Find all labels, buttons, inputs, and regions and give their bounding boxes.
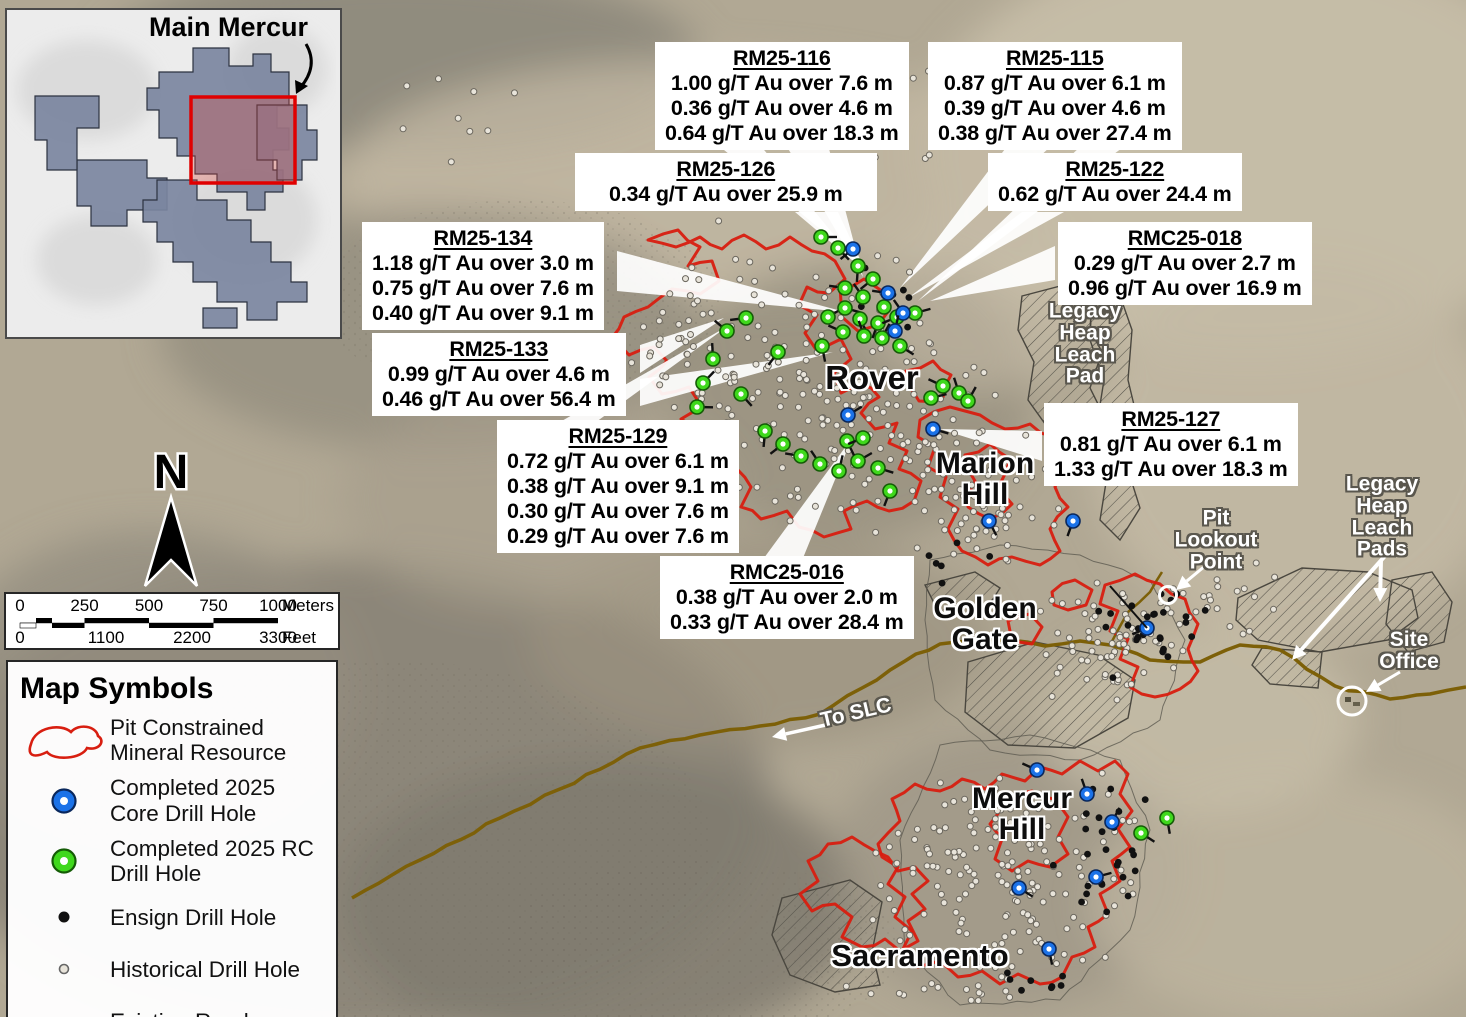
core-drill-hole-marker <box>1012 881 1026 895</box>
rc-drill-hole-marker <box>936 379 950 393</box>
ensign-drill-hole-icon <box>18 891 110 943</box>
core-drill-hole-marker <box>881 286 895 300</box>
rc-drill-hole-marker <box>924 391 938 405</box>
pit-outline-icon <box>18 714 110 766</box>
inset-claim-graphics <box>7 10 336 333</box>
rc-drill-hole-marker <box>838 301 852 315</box>
intercept-line: 0.38 g/T Au over 2.0 m <box>670 585 904 610</box>
map-legend: Map Symbols Pit Constrained Mineral Reso… <box>6 660 338 1017</box>
drillhole-callout-RM25-133: RM25-1330.99 g/T Au over 4.6 m0.46 g/T A… <box>372 333 626 416</box>
rc-drill-hole-marker <box>1160 811 1174 825</box>
drillhole-id: RM25-127 <box>1054 406 1288 432</box>
svg-text:250: 250 <box>70 596 98 615</box>
inset-claim-map: Main Mercur <box>5 8 342 339</box>
rc-drill-hole-marker <box>776 437 790 451</box>
rc-drill-hole-marker <box>832 464 846 478</box>
place-label-marion-hill: Marion Hill <box>936 448 1034 510</box>
legend-item-pit-outline: Pit Constrained Mineral Resource <box>18 710 332 770</box>
mercur-exploration-map: N Main Mercur 02505007501000Meters011002… <box>0 0 1466 1017</box>
intercept-line: 1.00 g/T Au over 7.6 m <box>665 71 899 96</box>
core-drill-hole-marker <box>1080 787 1094 801</box>
drillhole-callout-RM25-126: RM25-1260.34 g/T Au over 25.9 m <box>575 153 877 211</box>
rc-drill-hole-marker <box>831 241 845 255</box>
intercept-line: 0.75 g/T Au over 7.6 m <box>372 276 594 301</box>
drillhole-id: RM25-115 <box>938 45 1172 71</box>
rc-drill-hole-marker <box>690 400 704 414</box>
legend-item-rc-drill-hole: Completed 2025 RC Drill Hole <box>18 831 332 891</box>
core-drill-hole-marker <box>846 242 860 256</box>
drillhole-id: RM25-133 <box>382 336 616 362</box>
rc-drill-hole-marker <box>771 345 785 359</box>
svg-text:2200: 2200 <box>173 628 211 647</box>
drillhole-callout-RMC25-018: RMC25-0180.29 g/T Au over 2.7 m0.96 g/T … <box>1058 222 1312 305</box>
drillhole-callout-RM25-127: RM25-1270.81 g/T Au over 6.1 m1.33 g/T A… <box>1044 403 1298 486</box>
drillhole-id: RMC25-018 <box>1068 225 1302 251</box>
rc-drill-hole-marker <box>838 281 852 295</box>
rc-drill-hole-marker <box>734 387 748 401</box>
intercept-line: 1.33 g/T Au over 18.3 m <box>1054 457 1288 482</box>
intercept-line: 1.18 g/T Au over 3.0 m <box>372 251 594 276</box>
place-label-sacramento: Sacramento <box>831 940 1008 972</box>
rc-drill-hole-marker <box>696 376 710 390</box>
svg-text:1100: 1100 <box>88 628 125 647</box>
historical-drill-hole-icon <box>18 943 110 995</box>
intercept-line: 0.29 g/T Au over 7.6 m <box>507 524 729 549</box>
intercept-line: 0.62 g/T Au over 24.4 m <box>998 182 1232 207</box>
rc-drill-hole-marker <box>851 259 865 273</box>
legend-item-label: Ensign Drill Hole <box>110 900 332 935</box>
core-drill-hole-marker <box>888 324 902 338</box>
rc-drill-hole-marker <box>871 461 885 475</box>
core-drill-hole-marker <box>1089 870 1103 884</box>
drillhole-id: RM25-129 <box>507 423 729 449</box>
drillhole-callout-RM25-115: RM25-1150.87 g/T Au over 6.1 m0.39 g/T A… <box>928 42 1182 150</box>
rc-drill-hole-icon <box>18 835 110 887</box>
core-drill-hole-marker <box>1042 942 1056 956</box>
intercept-line: 0.46 g/T Au over 56.4 m <box>382 387 616 412</box>
intercept-line: 0.99 g/T Au over 4.6 m <box>382 362 616 387</box>
rc-drill-hole-marker <box>758 424 772 438</box>
rc-drill-hole-marker <box>856 290 870 304</box>
legend-item-label: Pit Constrained Mineral Resource <box>110 710 332 770</box>
legend-item-existing-road: Existing Road <box>18 995 332 1017</box>
intercept-line: 0.96 g/T Au over 16.9 m <box>1068 276 1302 301</box>
core-drill-hole-marker <box>841 408 855 422</box>
intercept-line: 0.39 g/T Au over 4.6 m <box>938 96 1172 121</box>
existing-road-icon <box>18 995 110 1017</box>
rc-drill-hole-marker <box>883 484 897 498</box>
core-drill-hole-marker <box>926 422 940 436</box>
svg-text:Meters: Meters <box>282 596 334 615</box>
intercept-line: 0.87 g/T Au over 6.1 m <box>938 71 1172 96</box>
svg-text:Feet: Feet <box>282 628 316 647</box>
feature-label-site-office: Site Office <box>1379 629 1439 673</box>
rc-drill-hole-marker <box>961 394 975 408</box>
rc-drill-hole-marker <box>814 230 828 244</box>
intercept-line: 0.38 g/T Au over 9.1 m <box>507 474 729 499</box>
legend-item-label: Completed 2025 Core Drill Hole <box>110 770 332 830</box>
main-mercur-extent-box <box>191 97 295 183</box>
rc-drill-hole-marker <box>794 449 808 463</box>
feature-label-pit-lookout-point: Pit Lookout Point <box>1175 507 1258 572</box>
drillhole-callout-RM25-116: RM25-1161.00 g/T Au over 7.6 m0.36 g/T A… <box>655 42 909 150</box>
rc-drill-hole-marker <box>857 329 871 343</box>
north-label: N <box>154 446 189 499</box>
intercept-line: 0.36 g/T Au over 4.6 m <box>665 96 899 121</box>
legend-items: Pit Constrained Mineral ResourceComplete… <box>18 710 332 1017</box>
legend-item-ensign-drill-hole: Ensign Drill Hole <box>18 891 332 943</box>
rc-drill-hole-marker <box>1134 826 1148 840</box>
scale-bar: 02505007501000Meters0110022003300Feet <box>4 592 340 650</box>
rc-drill-hole-marker <box>856 431 870 445</box>
feature-label-legacy-heap-leach-pads: Legacy Heap Leach Pads <box>1346 473 1418 560</box>
intercept-line: 0.81 g/T Au over 6.1 m <box>1054 432 1288 457</box>
intercept-line: 0.64 g/T Au over 18.3 m <box>665 121 899 146</box>
svg-text:0: 0 <box>15 596 24 615</box>
drillhole-id: RM25-126 <box>609 156 843 182</box>
rc-drill-hole-marker <box>893 339 907 353</box>
rc-drill-hole-marker <box>836 325 850 339</box>
claim-boundary-polygon <box>203 308 237 328</box>
drillhole-id: RM25-134 <box>372 225 594 251</box>
drillhole-callout-RMC25-016: RMC25-0160.38 g/T Au over 2.0 m0.33 g/T … <box>660 556 914 639</box>
inset-title: Main Mercur <box>149 12 308 43</box>
svg-text:750: 750 <box>199 596 227 615</box>
legend-item-label: Existing Road <box>110 1004 332 1017</box>
drillhole-callout-RM25-134: RM25-1341.18 g/T Au over 3.0 m0.75 g/T A… <box>362 222 604 330</box>
core-drill-hole-icon <box>18 775 110 827</box>
place-label-mercur-hill: Mercur Hill <box>972 783 1072 845</box>
drillhole-id: RMC25-016 <box>670 559 904 585</box>
intercept-line: 0.34 g/T Au over 25.9 m <box>609 182 843 207</box>
svg-text:0: 0 <box>15 628 24 647</box>
intercept-line: 0.33 g/T Au over 28.4 m <box>670 610 904 635</box>
rc-drill-hole-marker <box>851 454 865 468</box>
rc-drill-hole-marker <box>813 457 827 471</box>
legend-item-historical-drill-hole: Historical Drill Hole <box>18 943 332 995</box>
rc-drill-hole-marker <box>877 300 891 314</box>
intercept-line: 0.29 g/T Au over 2.7 m <box>1068 251 1302 276</box>
intercept-line: 0.38 g/T Au over 27.4 m <box>938 121 1172 146</box>
rc-drill-hole-marker <box>720 324 734 338</box>
intercept-line: 0.40 g/T Au over 9.1 m <box>372 301 594 326</box>
core-drill-hole-marker <box>1030 763 1044 777</box>
rc-drill-hole-marker <box>840 434 854 448</box>
rc-drill-hole-marker <box>815 339 829 353</box>
intercept-line: 0.30 g/T Au over 7.6 m <box>507 499 729 524</box>
core-drill-hole-marker <box>982 514 996 528</box>
drillhole-callout-RM25-122: RM25-1220.62 g/T Au over 24.4 m <box>988 153 1242 211</box>
legend-item-label: Historical Drill Hole <box>110 952 332 987</box>
rc-drill-hole-marker <box>706 352 720 366</box>
legend-title: Map Symbols <box>20 672 332 706</box>
drillhole-callout-RM25-129: RM25-1290.72 g/T Au over 6.1 m0.38 g/T A… <box>497 420 739 553</box>
legend-item-label: Completed 2025 RC Drill Hole <box>110 831 332 891</box>
rc-drill-hole-marker <box>821 310 835 324</box>
svg-text:500: 500 <box>135 596 163 615</box>
place-label-golden-gate: Golden Gate <box>933 593 1036 655</box>
rc-drill-hole-marker <box>739 311 753 325</box>
legend-item-core-drill-hole: Completed 2025 Core Drill Hole <box>18 770 332 830</box>
place-label-rover: Rover <box>825 361 919 395</box>
core-drill-hole-marker <box>1105 815 1119 829</box>
drillhole-id: RM25-116 <box>665 45 899 71</box>
rc-drill-hole-marker <box>866 272 880 286</box>
intercept-line: 0.72 g/T Au over 6.1 m <box>507 449 729 474</box>
core-drill-hole-marker <box>1066 514 1080 528</box>
feature-label-legacy-heap-leach-pad: Legacy Heap Leach Pad <box>1049 300 1121 387</box>
rc-drill-hole-marker <box>875 331 889 345</box>
drillhole-id: RM25-122 <box>998 156 1232 182</box>
